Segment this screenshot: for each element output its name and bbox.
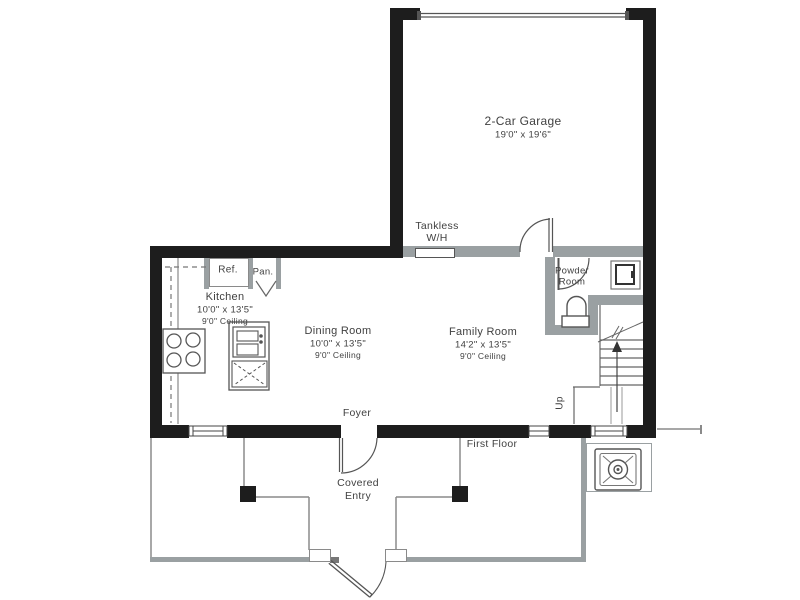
powder-room-label-line1: Powder <box>555 266 589 277</box>
garage-label: 2-Car Garage <box>485 114 562 128</box>
covered-entry-label-line1: Covered <box>337 477 379 489</box>
floor-plan: 2-Car Garage 19'0" x 19'6" Tankless W/H … <box>0 0 800 600</box>
pantry-label: Pan. <box>253 267 274 278</box>
refrigerator-label: Ref. <box>218 265 238 276</box>
stairs-up-label: Up <box>555 396 566 409</box>
family-room-ceiling: 9'0" Ceiling <box>460 351 506 361</box>
family-room-label: Family Room <box>449 326 517 338</box>
porch-outline <box>151 438 460 557</box>
window-left <box>189 426 227 436</box>
foyer-label: Foyer <box>343 407 371 419</box>
foyer-door <box>340 438 378 473</box>
courtyard-gate <box>329 561 386 598</box>
dining-room-dims: 10'0" x 13'5" <box>310 339 366 350</box>
first-floor-label: First Floor <box>467 438 518 450</box>
window-right-1 <box>529 426 549 436</box>
range-cooktop <box>163 329 205 373</box>
powder-sink <box>611 261 640 289</box>
kitchen-ceiling: 9'0" Ceiling <box>202 316 248 326</box>
tankless-label-line1: Tankless <box>415 220 458 232</box>
tankless-label-line2: W/H <box>426 232 447 244</box>
kitchen-dims: 10'0" x 13'5" <box>197 305 253 316</box>
side-ledge <box>657 425 701 434</box>
garage-entry-door <box>520 218 553 252</box>
kitchen-label: Kitchen <box>206 291 245 303</box>
garage-dims: 19'0" x 19'6" <box>495 130 551 141</box>
plan-linework <box>0 0 800 600</box>
ac-unit <box>595 449 641 490</box>
pantry-door <box>256 281 276 296</box>
kitchen-island <box>229 322 269 390</box>
window-right-2 <box>591 426 627 436</box>
covered-entry-label-line2: Entry <box>345 490 371 502</box>
family-room-dims: 14'2" x 13'5" <box>455 340 511 351</box>
powder-room-label-line2: Room <box>559 277 586 288</box>
dining-room-ceiling: 9'0" Ceiling <box>315 350 361 360</box>
dining-room-label: Dining Room <box>305 325 372 337</box>
garage-door <box>417 11 629 20</box>
toilet <box>562 297 589 328</box>
